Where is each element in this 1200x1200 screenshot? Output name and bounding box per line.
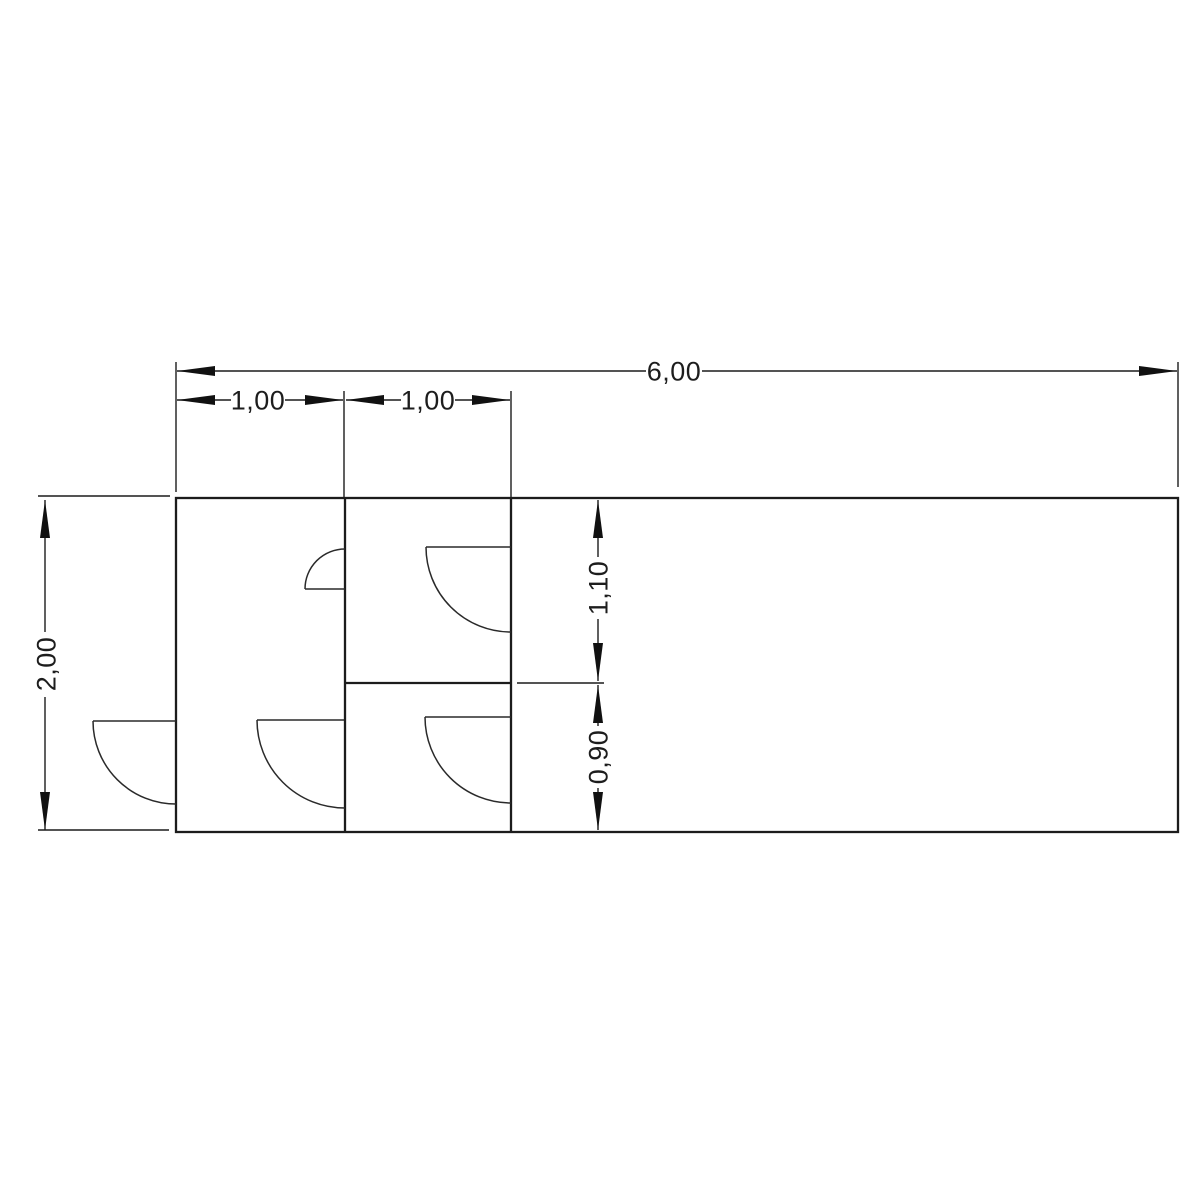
arrow-bay2-right-icon	[472, 395, 510, 405]
arrow-bay2-left-icon	[346, 395, 384, 405]
arrow-bay1-right-icon	[305, 395, 343, 405]
arrow-bay1-left-icon	[177, 395, 215, 405]
dim-label-bay1-width: 1,00	[231, 386, 286, 416]
dim-label-total-height: 2,00	[32, 637, 62, 692]
door-swing-arc-upper-middle-room	[426, 547, 511, 632]
arrow-total-height-top-icon	[40, 500, 50, 538]
dim-label-total-width: 6,00	[647, 357, 702, 387]
floor-plan-drawing: 6,00 1,00 1,00 2,00 1,10 0,90	[0, 0, 1200, 1200]
door-swing-arc-upper-left-room	[305, 549, 345, 589]
arrow-total-width-right-icon	[1139, 366, 1177, 376]
arrow-lower-depth-bottom-icon	[593, 792, 603, 830]
doors-group	[93, 547, 511, 808]
arrow-lower-depth-top-icon	[593, 685, 603, 723]
door-swing-arc-lower-middle-room	[425, 717, 511, 803]
walls-group	[176, 498, 1178, 832]
door-swing-arc-lower-left-room	[257, 720, 345, 808]
outer-wall-rectangle	[176, 498, 1178, 832]
floor-plan-page: 6,00 1,00 1,00 2,00 1,10 0,90	[0, 0, 1200, 1200]
dim-label-lower-room-depth: 0,90	[584, 730, 614, 785]
arrow-total-width-left-icon	[177, 366, 215, 376]
arrow-upper-depth-top-icon	[593, 500, 603, 538]
dim-label-bay2-width: 1,00	[401, 386, 456, 416]
arrow-upper-depth-bottom-icon	[593, 643, 603, 681]
dim-label-upper-room-depth: 1,10	[584, 561, 614, 616]
arrow-total-height-bottom-icon	[40, 792, 50, 830]
door-swing-arc-exterior-left	[93, 721, 176, 804]
